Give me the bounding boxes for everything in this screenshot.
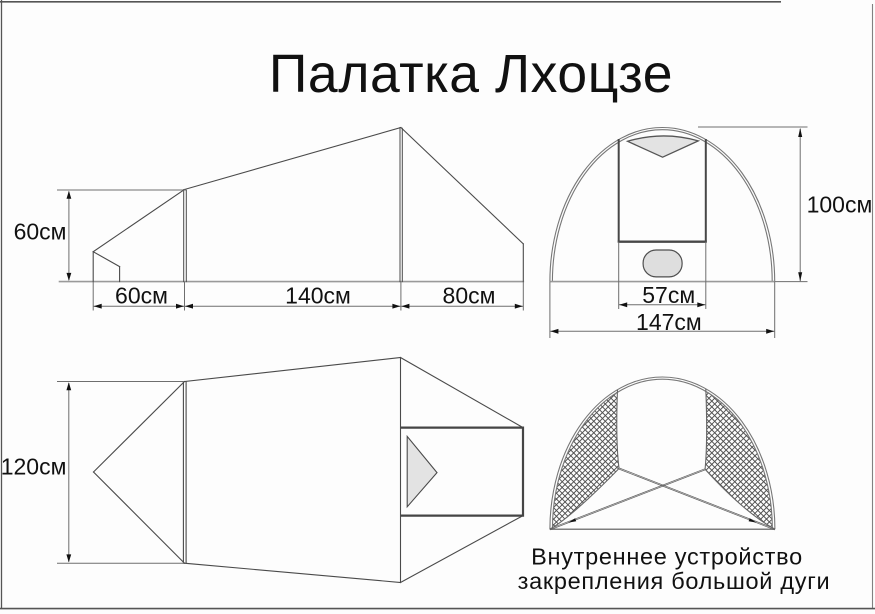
svg-text:Внутреннее устройство: Внутреннее устройство [531, 544, 803, 570]
svg-text:60см: 60см [115, 283, 168, 309]
svg-text:закрепления большой дуги: закрепления большой дуги [518, 568, 831, 594]
svg-text:140см: 140см [285, 283, 351, 309]
svg-text:80см: 80см [443, 283, 496, 309]
svg-text:147см: 147см [636, 309, 702, 335]
svg-text:57см: 57см [642, 282, 695, 308]
svg-text:100см: 100см [807, 191, 873, 217]
svg-text:Палатка Лхоцзе: Палатка Лхоцзе [269, 45, 673, 104]
svg-text:120см: 120см [1, 454, 67, 480]
svg-text:60см: 60см [14, 219, 67, 245]
